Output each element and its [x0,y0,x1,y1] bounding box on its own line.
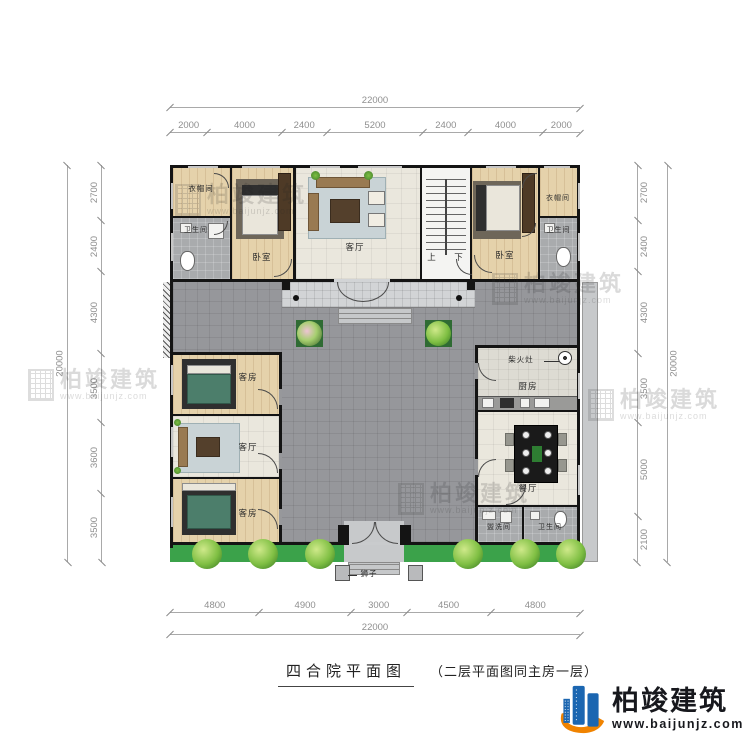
window-mark [578,465,580,495]
wall-segment [170,165,173,548]
wall-segment [282,282,290,290]
window-mark [188,166,218,168]
brand-url: www.baijunjz.com [612,717,744,731]
hedge-bush [248,539,278,569]
plate [544,467,552,475]
window-mark [358,166,402,168]
dim-segment: 3600 [88,423,102,494]
dim-top-segments: 2000400024005200240040002000 [170,118,580,133]
wall-segment [400,525,411,545]
wall-segment [538,168,540,279]
dim-segment: 3500 [88,493,102,562]
hedge-bush [453,539,483,569]
armchair-1 [368,191,385,205]
brand-name: 柏竣建筑 [612,688,744,715]
brand-logo: 柏竣建筑 www.baijunjz.com [556,682,744,736]
dim-segment: 2100 [637,516,651,562]
wall-hatch [163,282,170,358]
label-west-guest-2: 客房 [228,507,268,519]
dim-segment: 5200 [327,118,424,133]
bed-ne [486,185,520,231]
label-ne-bedroom: 卧室 [480,249,530,261]
label-ne-bath: 卫生间 [540,225,577,235]
label-nw-closet: 衣帽间 [174,183,228,194]
floor-plan-page: 22000 2000400024005200240040002000 48004… [0,0,750,750]
watermark-url: www.baijunjz.com [60,391,160,401]
dim-segment: 2000 [543,118,580,133]
window-mark [578,373,580,399]
toilet-ne [556,247,571,267]
window-mark [171,183,173,209]
dim-segment: 4300 [88,271,102,353]
door-opening [279,509,282,525]
lion-pedestal-east [408,565,423,581]
label-west-guest-1: 客房 [228,371,268,383]
dim-segment: 5000 [637,423,651,517]
dim-segment: 3000 [351,598,407,613]
watermark-name: 柏竣建筑 [60,368,160,391]
wash-sink [482,511,496,520]
wall-segment [338,525,349,545]
appliance [500,398,514,408]
dim-segment: 4900 [259,598,350,613]
bed-headboard-ne [476,185,486,231]
bed-pillow-w1 [187,365,231,374]
dim-left-total: 20000 [54,165,68,562]
bed-w2 [187,495,231,529]
label-nw-bath: 卫生间 [174,225,218,235]
stove-leader-line [544,361,559,362]
wood-stove [558,351,572,365]
main-hall-steps [338,308,412,324]
label-nw-bedroom: 卧室 [240,251,284,263]
window-mark [171,497,173,527]
dim-segment: 2400 [88,221,102,272]
bed-headboard-nw [242,185,278,195]
plant-pot [311,171,320,180]
appliance [520,398,530,408]
label-washroom: 盥洗间 [476,522,522,532]
hedge-bush [510,539,540,569]
label-lions: 狮子 [356,568,382,579]
wall-segment [230,168,232,279]
label-stairs-down: 下 [451,251,467,263]
label-kitchen: 厨房 [508,380,548,392]
label-main-hall: 客厅 [325,241,385,253]
sofa-left [308,193,319,231]
coffee-table [330,199,360,223]
wall-segment [170,414,282,416]
window-mark [578,233,580,261]
dim-segment: 22000 [170,93,580,108]
watermark: 柏竣建筑www.baijunjz.com [588,388,720,421]
label-stove: 柴火灶 [498,354,544,365]
planter-shrub-east [426,321,451,346]
dining-chair [505,459,514,472]
label-se-bath: 卫生间 [526,522,574,532]
wall-segment [293,168,296,279]
dim-segment: 3500 [637,354,651,423]
dim-segment: 22000 [170,620,580,635]
dim-right-total: 20000 [667,165,681,562]
label-ne-closet: 衣帽间 [538,193,578,203]
dim-segment: 4800 [491,598,580,613]
dining-chair [558,459,567,472]
wall-segment [467,282,475,290]
sink-se [530,511,540,520]
plate [522,431,530,439]
veranda-column [293,295,299,301]
dim-segment: 2000 [170,118,207,133]
label-west-hall: 客厅 [228,441,268,453]
bed-w1 [187,374,231,404]
west-table [196,437,220,457]
dim-left-segments: 270024004300350036003500 [88,165,102,562]
title-main: 四合院平面图 [278,660,414,687]
plate [522,467,530,475]
appliance [482,398,494,408]
door-opening [279,389,282,405]
dim-segment: 4000 [468,118,543,133]
window-mark [310,166,340,168]
dim-segment: 20000 [54,165,68,562]
veranda-column [456,295,462,301]
dining-chair [505,433,514,446]
side-path [582,282,598,562]
plate [544,449,552,457]
dim-segment: 2400 [282,118,327,133]
toilet-nw [180,251,195,271]
dining-centerpiece [532,446,542,462]
lion-pedestal-west [335,565,350,581]
sofa-top [316,177,370,188]
plant-pot [364,171,373,180]
window-mark [544,166,570,168]
dim-bottom-segments: 48004900300045004800 [170,598,580,613]
hedge-bush [556,539,586,569]
hedge-bush [305,539,335,569]
stair-rail [445,179,447,255]
dim-right-segments: 270024004300350050002100 [637,165,651,562]
dim-segment: 4000 [207,118,282,133]
drawing-title: 四合院平面图 （二层平面图同主房一层） [278,660,598,687]
appliance [534,398,550,408]
door-opening [279,453,282,469]
wall-segment [475,410,580,412]
window-mark [486,166,516,168]
dim-segment: 2400 [637,221,651,272]
window-mark [171,233,173,261]
wall-segment [420,168,422,279]
wall-segment [475,505,580,507]
title-note: （二层平面图同主房一层） [430,660,598,680]
dim-segment: 4500 [407,598,491,613]
watermark-logo-icon [28,369,54,401]
label-dining: 餐厅 [508,482,548,494]
dim-segment: 4800 [170,598,259,613]
plate [544,431,552,439]
dining-chair [558,433,567,446]
wardrobe-nw [278,173,291,231]
dim-segment: 2700 [88,165,102,221]
dim-top-total: 22000 [170,93,580,108]
plate [522,449,530,457]
room-ne-closet [540,168,577,216]
wall-segment [170,352,282,355]
bed-nw [242,195,278,235]
planter-shrub-west [297,321,322,346]
window-mark [171,427,173,457]
label-stairs-up: 上 [424,251,440,263]
armchair-2 [368,213,385,227]
dim-segment: 2700 [637,165,651,221]
window-mark [171,365,173,395]
dim-segment: 4300 [637,271,651,353]
bed-canopy-w2 [182,483,236,491]
plant-pot [174,419,181,426]
wall-segment [475,345,580,348]
wall-segment [170,477,282,479]
window-mark [242,166,280,168]
floor-plan: 衣帽间 卫生间 卧室 客厅 上 下 卧室 衣帽间 卫生间 客房 客厅 客房 柴火… [170,165,580,562]
dim-segment: 3500 [88,354,102,423]
brand-logo-icon [556,682,606,736]
dim-segment: 20000 [667,165,681,562]
wall-segment [540,216,577,218]
plant-pot [174,467,181,474]
dim-bottom-total: 22000 [170,620,580,635]
hedge-bush [192,539,222,569]
dim-segment: 2400 [423,118,468,133]
west-sofa [178,427,188,467]
wall-segment [173,216,230,218]
